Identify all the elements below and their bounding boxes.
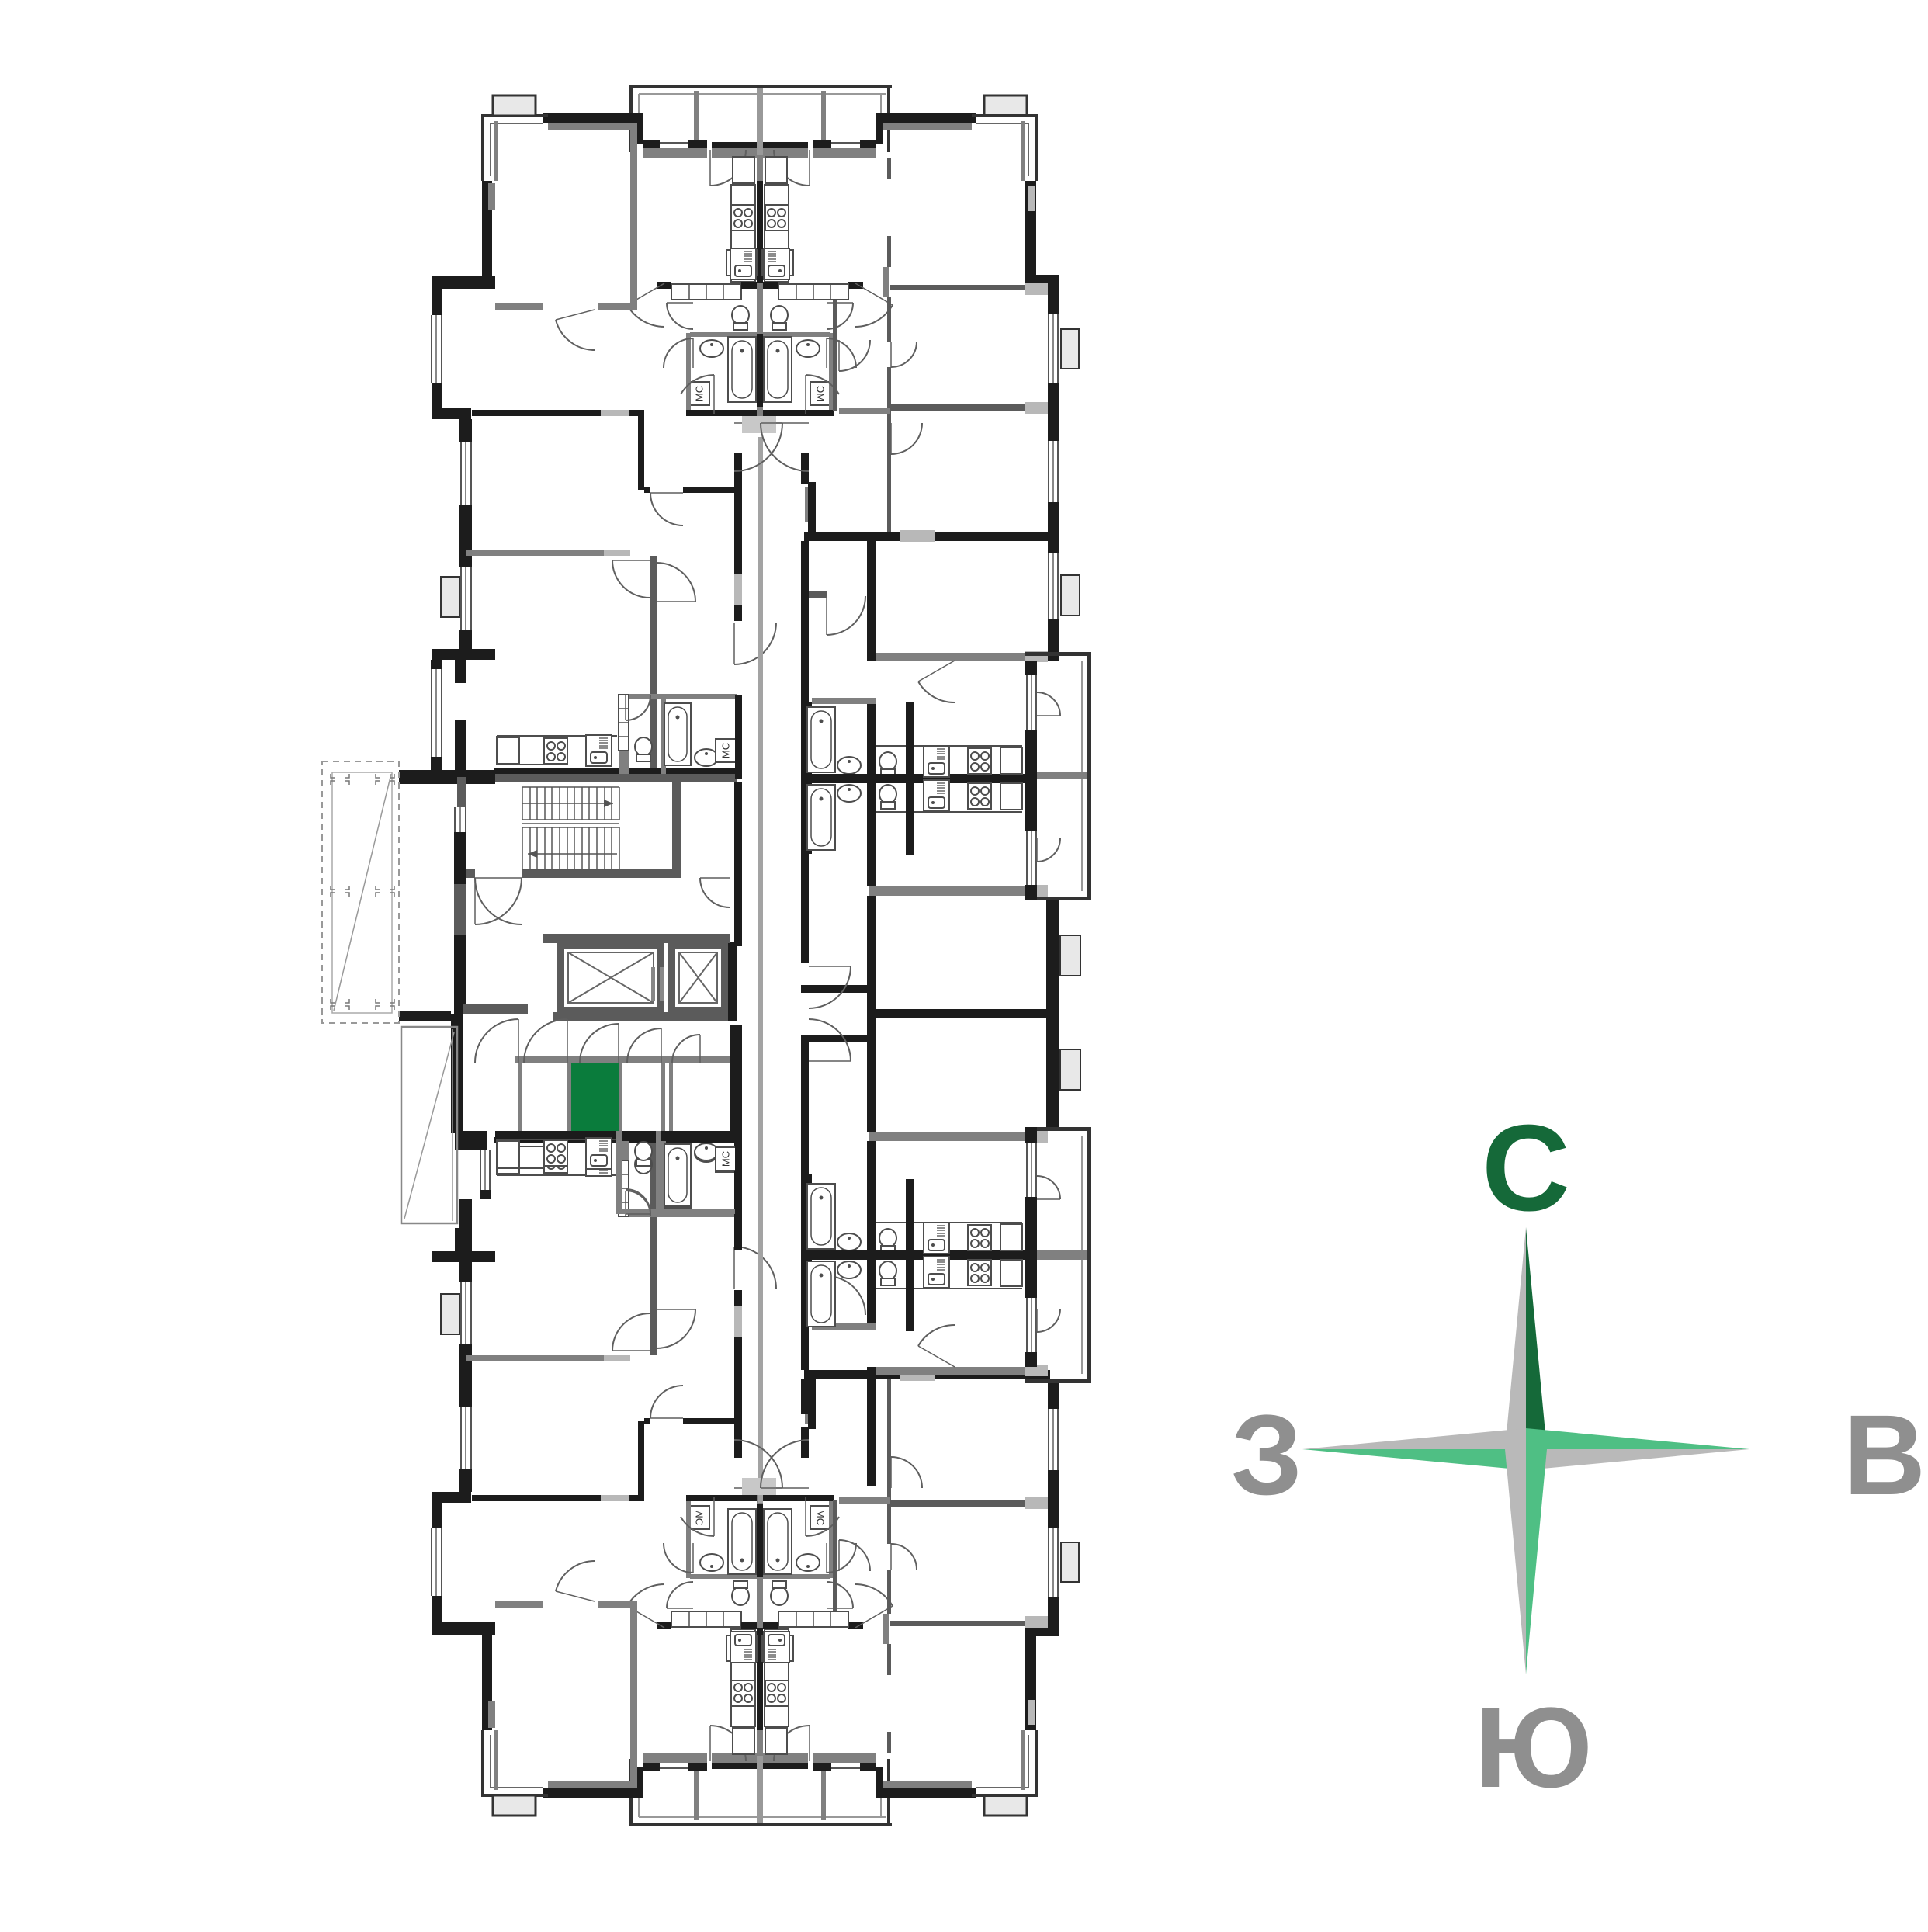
svg-text:МС: МС [815,386,827,401]
svg-text:МС: МС [694,1510,706,1525]
svg-text:МС: МС [720,1151,732,1167]
svg-text:МС: МС [720,743,732,758]
svg-text:З: З [1231,1392,1302,1519]
svg-text:МС: МС [694,386,706,401]
svg-text:МС: МС [815,1510,827,1525]
svg-text:Ю: Ю [1475,1684,1593,1812]
svg-text:В: В [1843,1392,1926,1519]
svg-text:С: С [1482,1100,1570,1237]
